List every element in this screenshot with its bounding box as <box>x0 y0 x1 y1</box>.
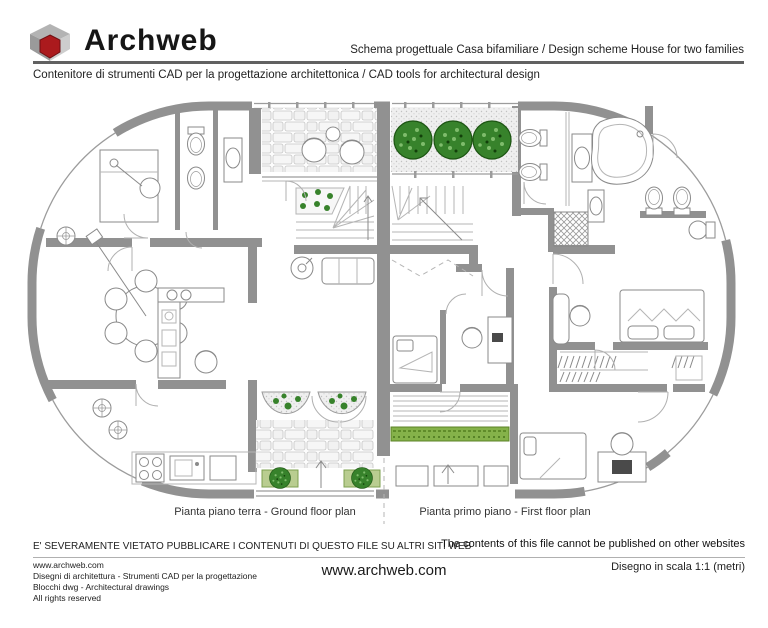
footer-rule <box>33 557 745 558</box>
bedroom-2 <box>393 336 437 383</box>
first-floor-caption: Pianta primo piano - First floor plan <box>390 506 620 518</box>
header-rule <box>33 61 744 64</box>
study-room <box>100 150 160 222</box>
green-roof-band <box>391 108 518 178</box>
brand-title: Archweb <box>84 24 218 58</box>
header-tagline: Contenitore di strumenti CAD per la prog… <box>33 69 540 81</box>
archweb-cube-icon <box>26 22 74 62</box>
ground-floor-caption: Pianta piano terra - Ground floor plan <box>150 506 380 518</box>
hedge-strip <box>391 427 509 441</box>
footer-line-3: Blocchi dwg - Architectural drawings <box>33 582 257 593</box>
footer-line-4: All rights reserved <box>33 593 257 604</box>
bedroom-3 <box>520 433 646 482</box>
notice-italian: E' SEVERAMENTE VIETATO PUBBLICARE I CONT… <box>33 541 471 552</box>
scheme-title: Schema progettuale Casa bifamiliare / De… <box>350 44 744 56</box>
floor-plan-drawing <box>0 90 768 530</box>
footer-scale-note: Disegno in scala 1:1 (metri) <box>611 561 745 573</box>
notice-english: The contents of this file cannot be publ… <box>441 538 745 550</box>
